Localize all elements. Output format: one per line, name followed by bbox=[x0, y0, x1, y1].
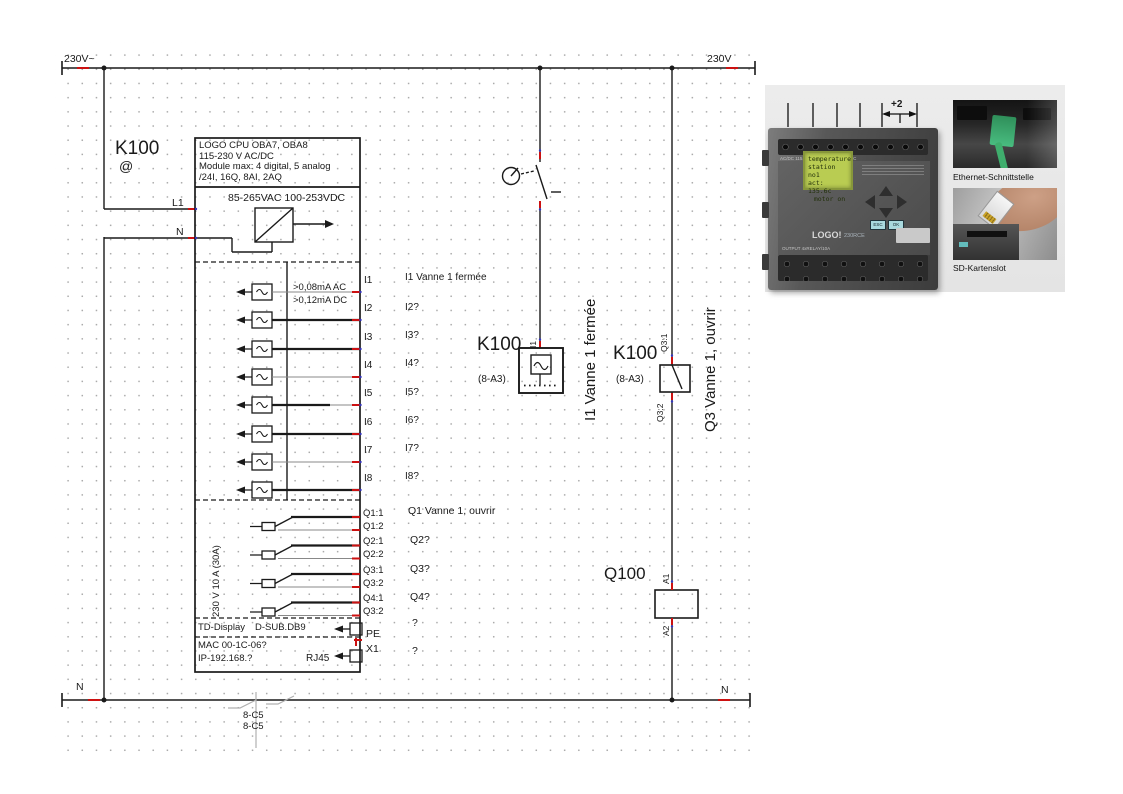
q3-branch bbox=[655, 68, 698, 700]
rail-label-n-right: N bbox=[721, 684, 729, 696]
rail-label-n-left: N bbox=[76, 681, 84, 693]
output-text-q2: Q2? bbox=[410, 534, 430, 546]
ip-label: IP-192.168.? bbox=[198, 653, 252, 664]
input-terminal-i6: I6 bbox=[364, 417, 372, 428]
k100-q3-ref: (8-A3) bbox=[616, 374, 644, 385]
input-terminal-i7: I7 bbox=[364, 445, 372, 456]
q100-tag: Q100 bbox=[604, 564, 646, 584]
output-text-q1: Q1 Vanne 1, ouvrir bbox=[408, 505, 495, 517]
output-terminal-q21: Q2:1 bbox=[363, 536, 384, 547]
photo-dim-label: +2 bbox=[891, 99, 902, 110]
output-rows bbox=[250, 517, 360, 616]
input-terminal-i8: I8 bbox=[364, 473, 372, 484]
k100-q3-tag: K100 bbox=[613, 343, 657, 365]
x1-text: ? bbox=[412, 645, 418, 657]
output-terminal-q22: Q2:2 bbox=[363, 549, 384, 560]
switch-branch bbox=[503, 68, 562, 348]
input-wires-thin bbox=[272, 292, 360, 462]
output-text-q4: Q4? bbox=[410, 591, 430, 603]
input-text-i4: I4? bbox=[405, 358, 419, 369]
input-terminal-i3: I3 bbox=[364, 332, 372, 343]
plc-header-line4: /24I, 16Q, 8AI, 2AQ bbox=[199, 172, 282, 183]
x1-terminal-label: X1 bbox=[366, 643, 379, 655]
input-arrows bbox=[236, 289, 245, 494]
input-text-i6: I6? bbox=[405, 415, 419, 426]
k100-i1-tag: K100 bbox=[477, 334, 521, 356]
mac-label: MAC 00-1C-06? bbox=[198, 640, 267, 651]
td-display-label: TD-Display bbox=[198, 622, 245, 633]
output-terminal-q31: Q3:1 bbox=[363, 565, 384, 576]
pe-terminal-label: PE bbox=[366, 628, 380, 640]
crossref-2: 8-C5 bbox=[243, 721, 264, 732]
k100-input-box bbox=[519, 348, 563, 393]
schematic-wires bbox=[0, 0, 1123, 794]
bottom-rail bbox=[62, 693, 750, 707]
plc-header-line2: 115-230 V AC/DC bbox=[199, 151, 274, 162]
output-terminal-q12: Q1:2 bbox=[363, 521, 384, 532]
output-terminal-q32: Q3:2 bbox=[363, 578, 384, 589]
terminal-l1: L1 bbox=[172, 197, 184, 209]
input-note-ac: >0,08mA AC bbox=[293, 282, 346, 293]
q100-a2: A2 bbox=[661, 626, 671, 636]
rj45-connector bbox=[334, 650, 362, 662]
k100-i1-ref: (8-A3) bbox=[478, 374, 506, 385]
input-note-dc: >0,12mA DC bbox=[293, 295, 347, 306]
q3-terminal-bottom: Q3:2 bbox=[655, 404, 665, 422]
dsub-label: D-SUB.DB9 bbox=[255, 622, 306, 633]
rail-label-230v-left: 230V~ bbox=[64, 53, 95, 65]
input-terminal-i5: I5 bbox=[364, 388, 372, 399]
k100-i1-terminal: I1 bbox=[528, 341, 538, 348]
plc-header-line3: Module max: 4 digital, 5 analog bbox=[199, 161, 331, 172]
crossref-1: 8-C5 bbox=[243, 710, 264, 721]
plc-header-line1: LOGO CPU OBA7, OBA8 bbox=[199, 140, 308, 151]
i1-wire-text-vertical: I1 Vanne 1 fermée bbox=[582, 299, 599, 421]
q3-terminal-top: Q3:1 bbox=[659, 334, 669, 352]
input-filter-boxes bbox=[252, 284, 272, 498]
input-terminal-i2: I2 bbox=[364, 303, 372, 314]
plc-supply-rating: 85-265VAC 100-253VDC bbox=[228, 192, 345, 204]
input-text-i5: I5? bbox=[405, 387, 419, 398]
output-terminal-q41: Q4:1 bbox=[363, 593, 384, 604]
output-contact-blades bbox=[275, 517, 293, 612]
input-text-i8: I8? bbox=[405, 471, 419, 482]
input-terminal-i1: I1 bbox=[364, 275, 372, 286]
q100-a1: A1 bbox=[661, 574, 671, 584]
input-rows bbox=[236, 284, 360, 498]
pe-connector bbox=[334, 623, 362, 635]
plc-tag: K100 bbox=[115, 138, 159, 160]
output-text-q3: Q3? bbox=[410, 563, 430, 575]
output-terminal-q42: Q3:2 bbox=[363, 606, 384, 617]
plc-tag-symbol: @ bbox=[119, 158, 133, 174]
pe-text: ? bbox=[412, 617, 418, 629]
input-text-i2: I2? bbox=[405, 302, 419, 313]
top-rail bbox=[62, 61, 755, 75]
rj45-label: RJ45 bbox=[306, 653, 329, 664]
rail-label-230v-right: 230V bbox=[707, 53, 732, 65]
input-text-i7: I7? bbox=[405, 443, 419, 454]
output-rating-vertical: 230 V 10 A (30A) bbox=[211, 545, 222, 617]
terminal-n: N bbox=[176, 226, 184, 238]
input-terminal-i4: I4 bbox=[364, 360, 372, 371]
output-actuator-boxes bbox=[262, 523, 275, 617]
input-text-i1: I1 Vanne 1 fermée bbox=[405, 272, 487, 283]
q3-wire-text-vertical: Q3 Vanne 1, ouvrir bbox=[702, 307, 719, 432]
input-text-i3: I3? bbox=[405, 330, 419, 341]
output-terminal-q11: Q1:1 bbox=[363, 508, 384, 519]
